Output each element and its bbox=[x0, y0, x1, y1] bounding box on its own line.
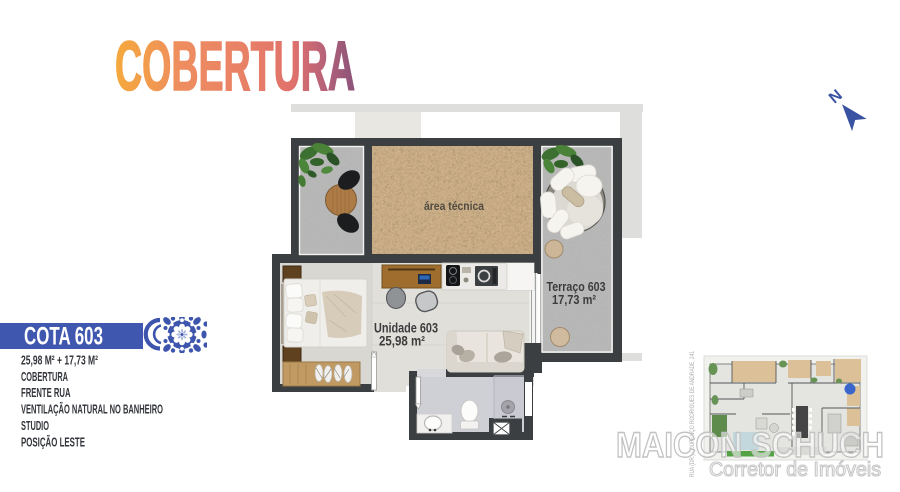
svg-text:Terraço 603: Terraço 603 bbox=[547, 280, 606, 294]
svg-text:VENTILAÇÃO NATURAL NO BANHEIRO: VENTILAÇÃO NATURAL NO BANHEIRO bbox=[21, 402, 163, 417]
svg-text:COBERTURA: COBERTURA bbox=[21, 370, 68, 384]
svg-text:COTA 603: COTA 603 bbox=[24, 323, 103, 351]
svg-text:POSIÇÃO LESTE: POSIÇÃO LESTE bbox=[21, 435, 85, 450]
svg-text:COBERTURA: COBERTURA bbox=[115, 27, 355, 105]
svg-text:FRENTE RUA: FRENTE RUA bbox=[21, 386, 71, 400]
svg-text:área técnica: área técnica bbox=[424, 201, 485, 213]
svg-text:STUDIO: STUDIO bbox=[21, 419, 49, 433]
svg-text:Corretor de Imóveis: Corretor de Imóveis bbox=[709, 459, 881, 481]
svg-text:25,98 M² + 17,73 M²: 25,98 M² + 17,73 M² bbox=[21, 354, 98, 368]
svg-text:17,73 m²: 17,73 m² bbox=[552, 293, 596, 307]
svg-text:25,98 m²: 25,98 m² bbox=[379, 333, 425, 349]
